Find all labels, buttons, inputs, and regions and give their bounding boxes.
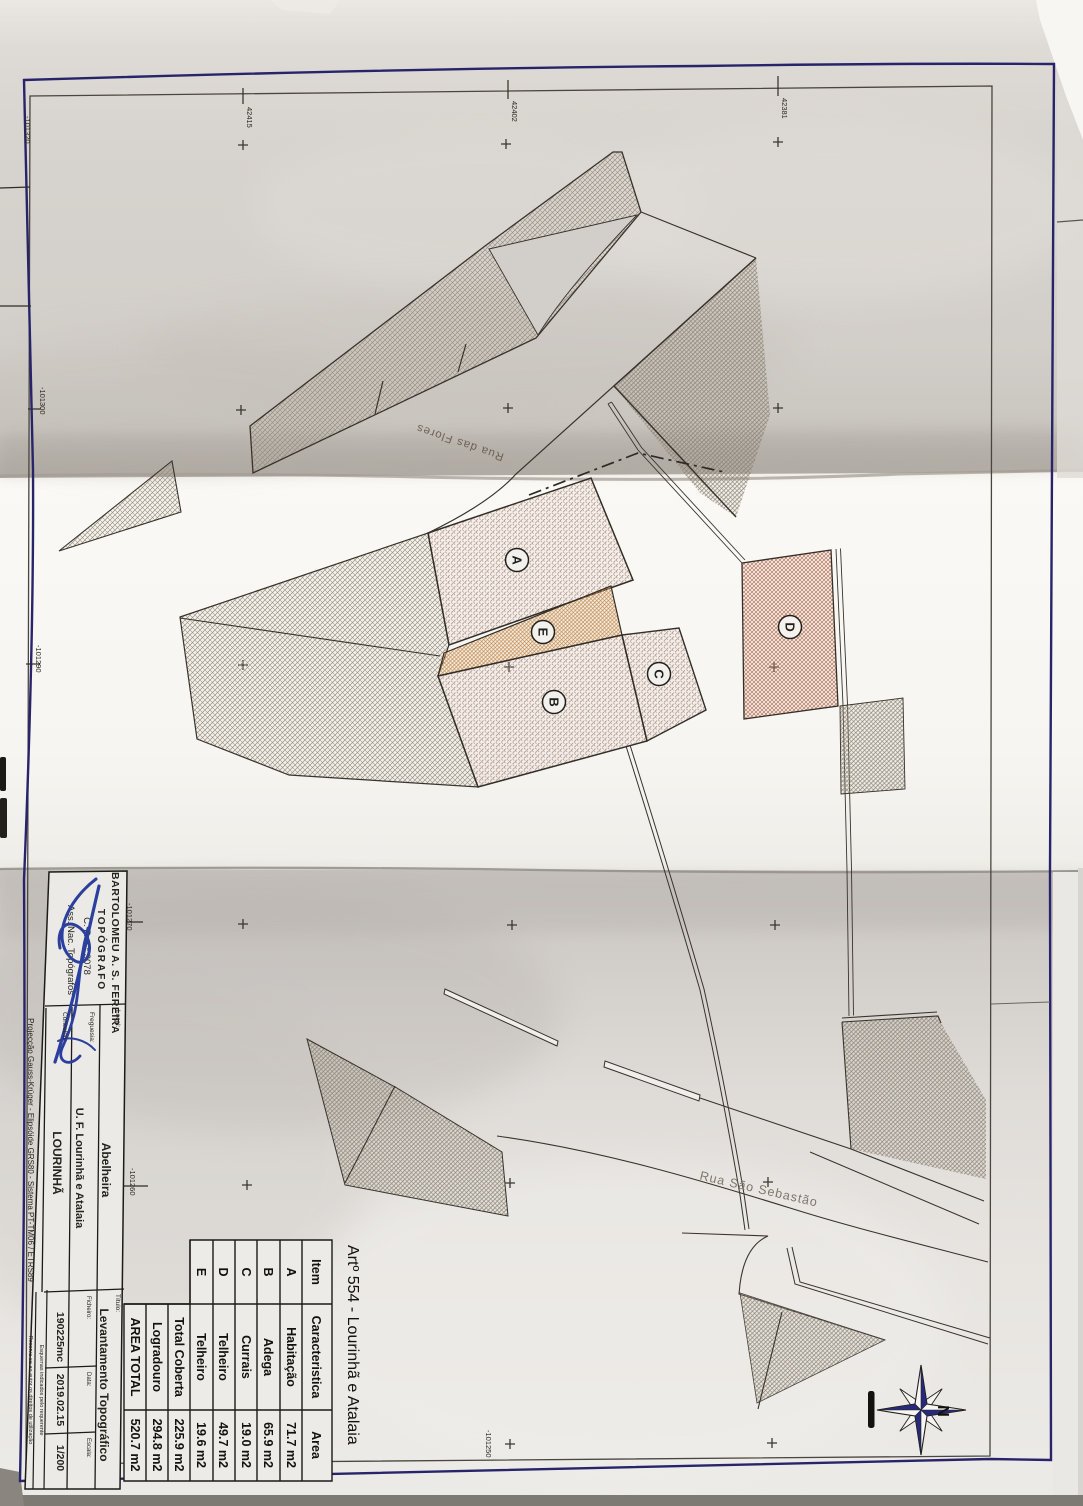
svg-text:2019.02.15: 2019.02.15 <box>54 1374 66 1427</box>
svg-text:TOPÓGRAFO: TOPÓGRAFO <box>95 909 108 991</box>
svg-text:Projecção Gauss-Krüger - Elips: Projecção Gauss-Krüger - Elipsóide GRS80… <box>26 1018 35 1282</box>
svg-text:B: B <box>547 697 562 706</box>
svg-text:Título:: Título: <box>114 1294 121 1312</box>
svg-text:-101300: -101300 <box>38 387 47 415</box>
svg-text:-101250: -101250 <box>484 1430 493 1458</box>
svg-text:65.9 m2: 65.9 m2 <box>261 1422 275 1468</box>
svg-text:Caracteristica: Caracteristica <box>309 1316 323 1400</box>
svg-text:-101290: -101290 <box>34 645 43 673</box>
svg-text:Adega: Adega <box>261 1338 275 1377</box>
svg-text:Data:: Data: <box>85 1372 91 1387</box>
svg-text:19.0 m2: 19.0 m2 <box>239 1422 253 1468</box>
svg-text:1/200: 1/200 <box>54 1445 66 1471</box>
svg-text:U. F. Lourinhã e Atalaia: U. F. Lourinhã e Atalaia <box>73 1108 85 1229</box>
svg-text:C: C <box>652 669 667 679</box>
svg-text:42402: 42402 <box>510 101 519 122</box>
svg-text:Telheiro: Telheiro <box>216 1333 230 1381</box>
svg-text:Concelho:: Concelho: <box>61 1012 68 1041</box>
svg-text:Item: Item <box>309 1259 323 1285</box>
svg-text:A: A <box>510 555 525 565</box>
svg-text:Local:: Local: <box>114 1010 121 1028</box>
svg-text:42381: 42381 <box>780 98 789 119</box>
svg-text:19.6 m2: 19.6 m2 <box>194 1422 208 1468</box>
svg-text:AREA TOTAL: AREA TOTAL <box>128 1318 142 1397</box>
svg-text:49.7 m2: 49.7 m2 <box>216 1422 230 1468</box>
svg-text:E: E <box>194 1268 208 1276</box>
svg-text:225.9 m2: 225.9 m2 <box>172 1419 186 1472</box>
svg-text:C: C <box>239 1267 253 1276</box>
svg-text:294.8 m2: 294.8 m2 <box>150 1419 164 1472</box>
svg-text:N: N <box>934 1405 951 1417</box>
svg-text:LOURINHÃ: LOURINHÃ <box>50 1131 65 1195</box>
svg-text:Freguesia:: Freguesia: <box>88 1012 95 1043</box>
svg-text:Telheiro: Telheiro <box>194 1333 208 1381</box>
svg-text:Area: Area <box>309 1431 323 1460</box>
svg-text:Total Coberta: Total Coberta <box>172 1317 186 1398</box>
svg-text:B: B <box>261 1267 275 1276</box>
svg-text:Ficheiro:: Ficheiro: <box>85 1296 91 1319</box>
svg-text:Levantamento Topográfico: Levantamento Topográfico <box>97 1308 111 1461</box>
svg-text:Reserva-se ao autor os direito: Reserva-se ao autor os direitos de utili… <box>27 1336 33 1445</box>
svg-text:A: A <box>284 1267 298 1276</box>
svg-text:Artº 554 - Lourinhã e Atalaia: Artº 554 - Lourinhã e Atalaia <box>344 1245 361 1445</box>
svg-text:D: D <box>783 622 798 631</box>
svg-text:42415: 42415 <box>245 107 254 128</box>
svg-text:Currais: Currais <box>239 1335 253 1379</box>
svg-text:E: E <box>536 628 551 637</box>
svg-text:Esquemas indicados pelo requer: Esquemas indicados pelo requerente <box>38 1345 44 1436</box>
svg-text:Logradouro: Logradouro <box>150 1322 164 1392</box>
svg-text:-101320: -101320 <box>23 116 32 144</box>
svg-text:Abelheira: Abelheira <box>99 1143 113 1198</box>
svg-text:190225mc: 190225mc <box>54 1312 66 1362</box>
svg-text:Escala:: Escala: <box>85 1438 91 1458</box>
svg-text:71.7 m2: 71.7 m2 <box>284 1422 298 1468</box>
svg-text:Habitação: Habitação <box>284 1327 298 1387</box>
svg-text:520.7 m2: 520.7 m2 <box>128 1419 142 1472</box>
svg-text:-101260: -101260 <box>128 1168 137 1196</box>
svg-text:D: D <box>216 1267 230 1276</box>
